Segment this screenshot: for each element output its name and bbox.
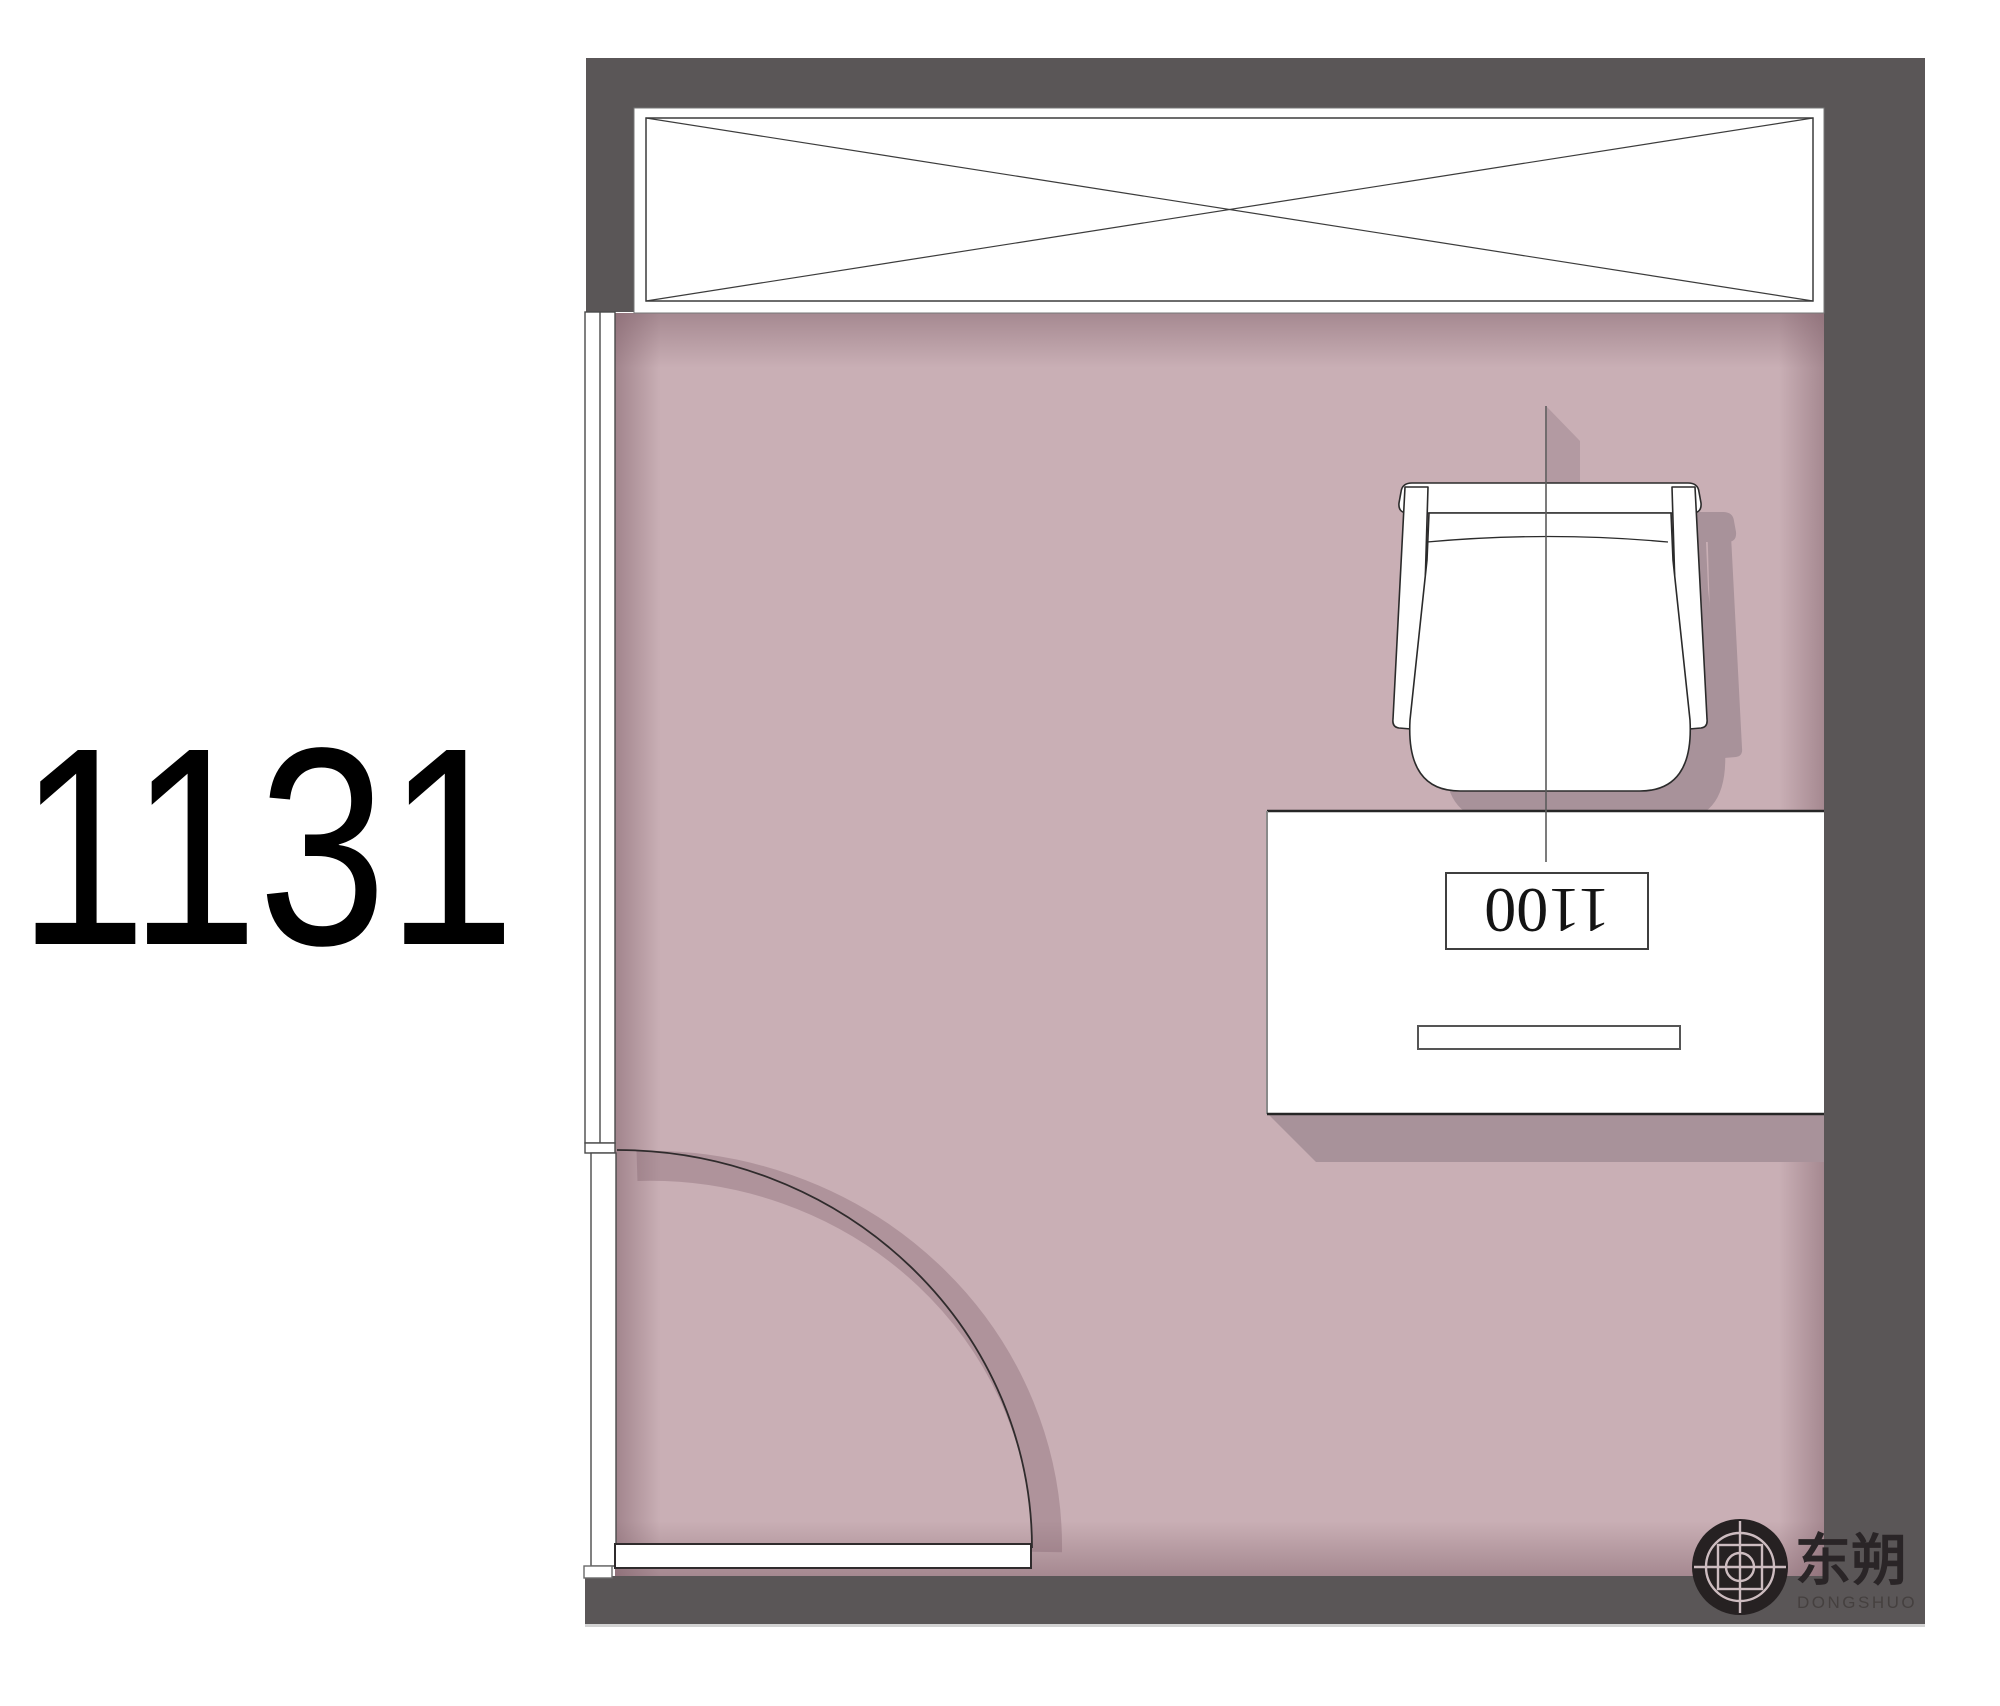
chair-backrest: [1399, 483, 1701, 513]
wall-right: [1824, 58, 1925, 1624]
keyboard-tray: [1418, 1026, 1680, 1049]
floor-plan: 1131: [0, 0, 2000, 1706]
logo-text-en: DONGSHUO: [1797, 1593, 1917, 1612]
office-chair: [1393, 483, 1707, 791]
floor-plan-drawing: 1100 东朔 DONGSHUO: [0, 0, 2000, 1706]
wall-bottom-shadow-line: [585, 1624, 1925, 1627]
door-leaf: [615, 1544, 1031, 1568]
logo-text-cn: 东朔: [1795, 1529, 1907, 1592]
door-threshold: [584, 1566, 612, 1578]
chair-seat: [1410, 513, 1691, 791]
desk-label-box: 1100: [1446, 873, 1648, 949]
wall-top: [586, 58, 1925, 108]
wall-top-left-pier: [586, 58, 634, 312]
window: [634, 108, 1824, 313]
left-partition: [584, 312, 616, 1578]
door-jamb: [585, 1143, 615, 1153]
door-opening: [591, 1153, 616, 1566]
logo: 东朔 DONGSHUO: [1692, 1519, 1917, 1615]
desk-width-label: 1100: [1484, 875, 1610, 946]
logo-target-icon: [1692, 1519, 1788, 1615]
